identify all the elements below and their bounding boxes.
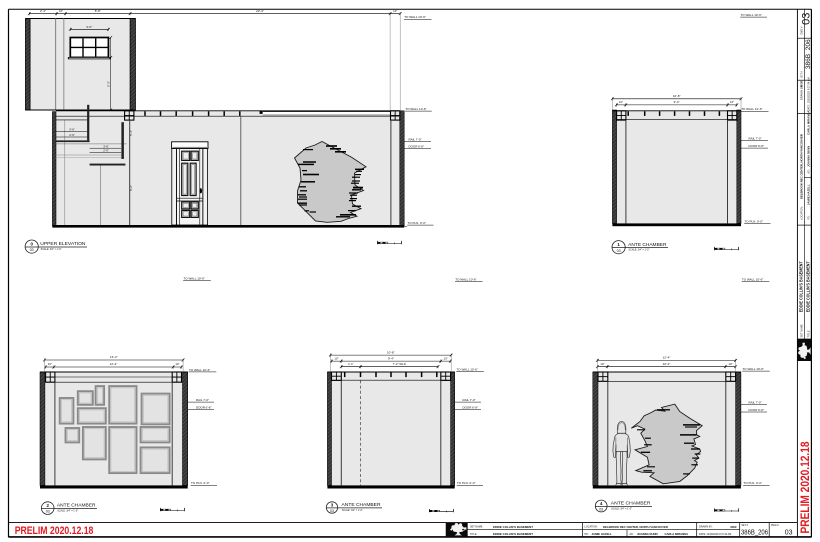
svg-text:JOANNA DUNN: JOANNA DUNN — [807, 146, 811, 167]
svg-text:DATE: 12/18/2020 9:37:34 AM: DATE: 12/18/2020 9:37:34 AM — [808, 77, 811, 111]
svg-text:03: 03 — [30, 248, 34, 252]
svg-text:SCALE: 3/4" = 1'-0": SCALE: 3/4" = 1'-0" — [57, 510, 78, 513]
svg-text:SCALE: 3/4" = 1'-0": SCALE: 3/4" = 1'-0" — [611, 507, 632, 510]
svg-text:ANTE CHAMBER: ANTE CHAMBER — [611, 501, 651, 506]
svg-text:5'-1": 5'-1" — [129, 130, 133, 136]
svg-text:TO PLN. 0'-0": TO PLN. 0'-0" — [457, 481, 475, 485]
svg-text:EDDIE COLLIN'S BASEMENT: EDDIE COLLIN'S BASEMENT — [493, 532, 533, 536]
svg-text:TO WALL 10'-6": TO WALL 10'-6" — [455, 277, 476, 281]
svg-text:SCALE: 3/4" = 1'-0": SCALE: 3/4" = 1'-0" — [629, 249, 650, 252]
svg-text:22'-4": 22'-4" — [256, 9, 264, 13]
svg-text:JAMIE HAZELL: JAMIE HAZELL — [807, 184, 811, 205]
svg-text:PD:: PD: — [585, 533, 589, 536]
svg-text:2'-6": 2'-6" — [69, 133, 75, 137]
svg-text:DWG #: DWG # — [800, 26, 803, 35]
svg-text:10": 10" — [444, 356, 448, 360]
svg-text:10'-4": 10'-4" — [663, 362, 671, 366]
svg-text:SET NAME: SET NAME — [470, 526, 483, 529]
svg-text:7'-4" WLD: 7'-4" WLD — [393, 362, 406, 366]
svg-text:CARLA MIRANDA: CARLA MIRANDA — [807, 110, 811, 135]
svg-text:TO WALL 10'-6": TO WALL 10'-6" — [404, 15, 426, 19]
svg-text:JOANNA DUNN: JOANNA DUNN — [637, 532, 658, 536]
svg-text:PD:: PD: — [808, 215, 811, 219]
svg-text:TITLE: TITLE — [470, 533, 477, 536]
svg-text:10": 10" — [48, 362, 52, 366]
svg-text:PRELIM 2020.12.18: PRELIM 2020.12.18 — [800, 441, 812, 534]
svg-text:TO PLN. 0'-0": TO PLN. 0'-0" — [744, 481, 762, 485]
svg-text:RAIL 7'-0": RAIL 7'-0" — [749, 401, 762, 405]
svg-text:2'-6": 2'-6" — [103, 149, 109, 153]
svg-text:9'-4": 9'-4" — [388, 356, 394, 360]
svg-text:TO WALL 10'-6": TO WALL 10'-6" — [743, 367, 764, 371]
svg-text:10": 10" — [728, 362, 732, 366]
svg-text:UPPER ELEVATION: UPPER ELEVATION — [40, 241, 85, 246]
svg-text:2'-4": 2'-4" — [40, 9, 46, 13]
svg-text:TO PLN. 0'-0": TO PLN. 0'-0" — [745, 220, 763, 224]
svg-text:DRAWN BY:: DRAWN BY: — [699, 526, 713, 529]
svg-text:10'-8": 10'-8" — [387, 350, 395, 354]
svg-text:DELBROOK REC CENTER, NORTH VAN: DELBROOK REC CENTER, NORTH VANCOUVER — [603, 525, 668, 529]
svg-text:10": 10" — [175, 362, 179, 366]
svg-text:AD:: AD: — [808, 169, 811, 173]
svg-text:03: 03 — [46, 510, 50, 514]
svg-text:LOCATION:: LOCATION: — [585, 526, 598, 529]
svg-text:12'-4": 12'-4" — [663, 356, 671, 360]
svg-text:EDDIE COLLIN'S BASEMENT: EDDIE COLLIN'S BASEMENT — [493, 525, 533, 529]
svg-text:10": 10" — [334, 356, 338, 360]
svg-text:10": 10" — [393, 9, 397, 13]
svg-text:EDDIE COLLIN'S BASEMENT: EDDIE COLLIN'S BASEMENT — [798, 261, 803, 312]
svg-text:AD:: AD: — [630, 533, 634, 536]
svg-text:EDDIE COLLIN'S BASEMENT: EDDIE COLLIN'S BASEMENT — [806, 261, 811, 312]
svg-text:TO WALL 10'-6": TO WALL 10'-6" — [457, 367, 478, 371]
svg-text:TO WALL 10'-6": TO WALL 10'-6" — [405, 107, 426, 111]
svg-text:10'-8": 10'-8" — [673, 94, 681, 98]
svg-text:TO PLN. 0'-0": TO PLN. 0'-0" — [191, 481, 209, 485]
svg-text:386B_206: 386B_206 — [741, 529, 768, 536]
svg-text:TO WALL 10'-6": TO WALL 10'-6" — [742, 277, 763, 281]
svg-text:MGR: MGR — [730, 525, 736, 529]
svg-text:DOOR 6'-8": DOOR 6'-8" — [749, 144, 764, 148]
svg-text:10": 10" — [59, 9, 63, 13]
svg-text:TO PLN. 0'-0": TO PLN. 0'-0" — [408, 221, 426, 225]
svg-text:8'-8": 8'-8" — [95, 9, 101, 13]
svg-text:1'-1": 1'-1" — [348, 362, 354, 366]
svg-text:12'-4": 12'-4" — [110, 362, 118, 366]
svg-text:ANTE CHAMBER: ANTE CHAMBER — [342, 502, 382, 507]
svg-text:TITLE: TITLE — [807, 330, 811, 337]
svg-text:03: 03 — [599, 508, 603, 512]
svg-text:MGR: MGR — [799, 81, 803, 87]
svg-text:3'-0": 3'-0" — [86, 25, 92, 29]
svg-text:ANTE CHAMBER: ANTE CHAMBER — [57, 503, 96, 508]
svg-text:TO WALL 10'-6": TO WALL 10'-6" — [189, 368, 210, 372]
svg-text:DOOR 6'-8": DOOR 6'-8" — [409, 145, 424, 149]
svg-text:TO WALL 10'-6": TO WALL 10'-6" — [741, 13, 762, 17]
svg-text:03: 03 — [617, 249, 621, 253]
svg-text:03: 03 — [800, 13, 812, 25]
svg-text:03: 03 — [330, 509, 334, 513]
svg-text:SCALE: 3/4" = 1'-0": SCALE: 3/4" = 1'-0" — [41, 248, 62, 251]
svg-text:DELBROOK REC CENTER, NORTH VAN: DELBROOK REC CENTER, NORTH VANCOUVER — [799, 134, 803, 199]
svg-text:DATE: 12/18/2020 9:37:34 AM: DATE: 12/18/2020 9:37:34 AM — [699, 533, 731, 536]
svg-text:DWG #: DWG # — [771, 525, 779, 527]
svg-text:DOOR 6'-8": DOOR 6'-8" — [196, 405, 211, 409]
svg-text:RAIL 7'-0": RAIL 7'-0" — [463, 398, 476, 402]
svg-text:SET #: SET # — [800, 70, 803, 78]
svg-text:RAIL 7'-0": RAIL 7'-0" — [196, 398, 209, 402]
svg-text:ANTE CHAMBER: ANTE CHAMBER — [628, 242, 667, 247]
svg-text:SCALE: 3/4" = 1'-0": SCALE: 3/4" = 1'-0" — [342, 509, 363, 512]
svg-text:CARLA MIRANDA: CARLA MIRANDA — [665, 532, 689, 536]
svg-text:13'-4": 13'-4" — [110, 355, 118, 359]
svg-text:2'-0": 2'-0" — [107, 45, 111, 51]
svg-text:DOOR 6'-8": DOOR 6'-8" — [749, 408, 764, 412]
svg-text:DOOR 6'-8": DOOR 6'-8" — [463, 405, 478, 409]
svg-text:SET #: SET # — [742, 525, 749, 527]
svg-text:JAMIE HAZELL: JAMIE HAZELL — [592, 532, 613, 536]
svg-text:RAIL 7'-0": RAIL 7'-0" — [749, 137, 762, 141]
svg-text:3'-6": 3'-6" — [69, 128, 75, 132]
svg-text:SET NAME: SET NAME — [799, 324, 803, 337]
svg-text:RAIL 7'-0": RAIL 7'-0" — [409, 137, 422, 141]
svg-text:TO WALL 10'-6": TO WALL 10'-6" — [741, 107, 762, 111]
svg-text:8'-2": 8'-2" — [129, 185, 133, 191]
svg-text:TO WALL 10'-6": TO WALL 10'-6" — [184, 276, 205, 280]
svg-text:386B_206: 386B_206 — [805, 39, 812, 69]
svg-text:10": 10" — [600, 362, 604, 366]
svg-text:9'-4": 9'-4" — [674, 100, 680, 104]
svg-text:10": 10" — [730, 100, 734, 104]
svg-text:5'-3": 5'-3" — [107, 81, 111, 87]
svg-text:PRELIM 2020.12.18: PRELIM 2020.12.18 — [15, 525, 94, 537]
svg-text:LOCATION:: LOCATION: — [799, 206, 803, 220]
svg-text:10": 10" — [619, 100, 623, 104]
svg-text:03: 03 — [785, 529, 793, 536]
